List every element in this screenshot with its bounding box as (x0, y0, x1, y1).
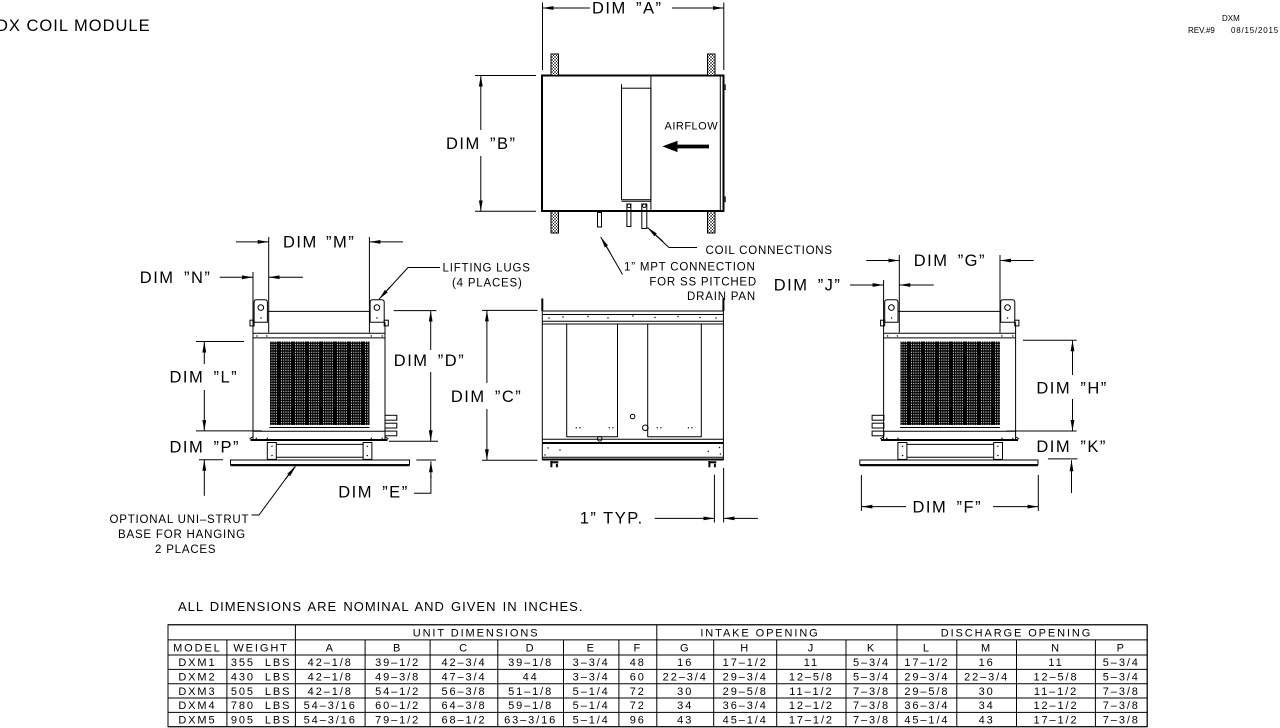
svg-text:”H”: ”H” (1080, 380, 1107, 398)
svg-text:3–3/4: 3–3/4 (573, 671, 610, 683)
svg-text:49–3/8: 49–3/8 (375, 671, 420, 683)
svg-text:17–1/2: 17–1/2 (1033, 714, 1078, 726)
svg-text:42–1/8: 42–1/8 (308, 686, 353, 698)
svg-text:DIM: DIM (1036, 438, 1071, 456)
svg-text:3–3/4: 3–3/4 (573, 657, 610, 669)
svg-text:J: J (808, 643, 815, 655)
svg-text:DRAIN PAN: DRAIN PAN (687, 291, 756, 303)
svg-text:5–3/4: 5–3/4 (1103, 671, 1140, 683)
svg-text:34: 34 (979, 700, 995, 712)
svg-text:7–3/8: 7–3/8 (853, 686, 890, 698)
svg-text:REV.#9: REV.#9 (1188, 26, 1215, 35)
svg-text:DIM: DIM (913, 499, 948, 517)
svg-text:44: 44 (523, 671, 539, 683)
svg-text:43: 43 (979, 714, 995, 726)
svg-text:UNIT DIMENSIONS: UNIT DIMENSIONS (413, 628, 540, 640)
svg-text:”N”: ”N” (184, 269, 211, 287)
svg-text:WEIGHT: WEIGHT (233, 643, 288, 655)
svg-text:COIL CONNECTIONS: COIL CONNECTIONS (706, 245, 833, 257)
svg-text:5–3/4: 5–3/4 (1103, 657, 1140, 669)
svg-text:505 LBS: 505 LBS (231, 686, 291, 698)
svg-text:E: E (587, 643, 596, 655)
svg-text:51–1/8: 51–1/8 (508, 686, 553, 698)
svg-text:12–5/8: 12–5/8 (789, 671, 834, 683)
svg-text:DXM3: DXM3 (178, 686, 216, 698)
svg-text:DXM2: DXM2 (178, 671, 216, 683)
svg-text:”A”: ”A” (636, 0, 663, 18)
svg-text:DXM4: DXM4 (178, 700, 216, 712)
svg-text:36–3/4: 36–3/4 (904, 700, 949, 712)
svg-text:905 LBS: 905 LBS (231, 714, 291, 726)
svg-text:7–3/8: 7–3/8 (1103, 714, 1140, 726)
svg-text:”M”: ”M” (326, 234, 355, 252)
svg-text:11–1/2: 11–1/2 (1034, 686, 1078, 698)
svg-text:”L”: ”L” (214, 369, 239, 387)
svg-text:”C”: ”C” (495, 388, 522, 406)
svg-text:DIM: DIM (394, 352, 429, 370)
svg-text:5–1/4: 5–1/4 (573, 714, 610, 726)
svg-text:7–3/8: 7–3/8 (1103, 700, 1140, 712)
svg-text:H: H (740, 643, 750, 655)
svg-text:DIM: DIM (1036, 380, 1071, 398)
svg-text:”E”: ”E” (382, 484, 409, 502)
svg-text:22–3/4: 22–3/4 (964, 671, 1009, 683)
svg-text:ALL DIMENSIONS ARE NOMINAL AND: ALL DIMENSIONS ARE NOMINAL AND GIVEN IN … (178, 599, 583, 614)
svg-text:54–3/16: 54–3/16 (304, 714, 357, 726)
svg-text:63–3/16: 63–3/16 (504, 714, 557, 726)
svg-text:45–1/4: 45–1/4 (723, 714, 768, 726)
svg-text:16: 16 (979, 657, 995, 669)
svg-text:A: A (326, 643, 335, 655)
svg-text:430 LBS: 430 LBS (231, 671, 291, 683)
svg-text:39–1/8: 39–1/8 (508, 657, 553, 669)
svg-text:DIM: DIM (170, 369, 205, 387)
svg-text:DXM5: DXM5 (178, 714, 216, 726)
svg-text:39–1/2: 39–1/2 (375, 657, 420, 669)
svg-text:7–3/8: 7–3/8 (853, 714, 890, 726)
svg-text:29–3/4: 29–3/4 (723, 671, 768, 683)
svg-text:K: K (867, 643, 876, 655)
svg-text:36–3/4: 36–3/4 (723, 700, 768, 712)
svg-text:96: 96 (630, 714, 646, 726)
svg-text:”G”: ”G” (958, 252, 986, 270)
svg-text:DIM: DIM (592, 0, 627, 18)
svg-text:43: 43 (677, 714, 693, 726)
svg-text:48: 48 (630, 657, 646, 669)
svg-text:1” MPT CONNECTION: 1” MPT CONNECTION (624, 261, 756, 273)
svg-text:”J”: ”J” (818, 277, 842, 295)
svg-text:72: 72 (630, 700, 646, 712)
svg-text:54–1/2: 54–1/2 (375, 686, 420, 698)
svg-text:29–5/8: 29–5/8 (723, 686, 768, 698)
svg-text:45–1/4: 45–1/4 (904, 714, 949, 726)
svg-text:INTAKE OPENING: INTAKE OPENING (700, 628, 819, 640)
svg-text:5–3/4: 5–3/4 (853, 657, 890, 669)
svg-text:72: 72 (630, 686, 646, 698)
svg-text:M: M (981, 643, 992, 655)
svg-text:34: 34 (677, 700, 693, 712)
svg-text:D: D (526, 643, 536, 655)
svg-text:L: L (923, 643, 931, 655)
svg-text:7–3/8: 7–3/8 (1103, 686, 1140, 698)
svg-text:17–1/2: 17–1/2 (789, 714, 834, 726)
svg-text:AIRFLOW: AIRFLOW (665, 121, 719, 133)
svg-text:DIM: DIM (451, 388, 486, 406)
svg-text:68–1/2: 68–1/2 (441, 714, 486, 726)
svg-text:54–3/16: 54–3/16 (304, 700, 357, 712)
svg-text:DIM: DIM (446, 135, 481, 153)
svg-text:60–1/2: 60–1/2 (375, 700, 420, 712)
svg-text:22–3/4: 22–3/4 (663, 671, 708, 683)
svg-text:”K”: ”K” (1080, 438, 1107, 456)
svg-text:DIM: DIM (774, 277, 809, 295)
svg-text:5–3/4: 5–3/4 (853, 671, 890, 683)
svg-text:2 PLACES: 2 PLACES (155, 544, 216, 556)
svg-text:11–1/2: 11–1/2 (789, 686, 833, 698)
svg-text:C: C (459, 643, 469, 655)
svg-text:”P”: ”P” (214, 439, 241, 457)
svg-text:16: 16 (677, 657, 693, 669)
svg-text:G: G (680, 643, 690, 655)
svg-text:780 LBS: 780 LBS (231, 700, 291, 712)
svg-text:30: 30 (677, 686, 693, 698)
svg-text:DIM: DIM (914, 252, 949, 270)
svg-text:29–5/8: 29–5/8 (904, 686, 949, 698)
svg-text:DIM: DIM (283, 234, 318, 252)
svg-text:12–1/2: 12–1/2 (1033, 700, 1078, 712)
svg-text:7–3/8: 7–3/8 (853, 700, 890, 712)
svg-text:42–1/8: 42–1/8 (308, 671, 353, 683)
svg-text:”D”: ”D” (438, 352, 465, 370)
svg-text:79–1/2: 79–1/2 (375, 714, 420, 726)
svg-text:60: 60 (630, 671, 646, 683)
svg-text:17–1/2: 17–1/2 (904, 657, 949, 669)
svg-text:56–3/8: 56–3/8 (441, 686, 486, 698)
svg-text:LIFTING LUGS: LIFTING LUGS (443, 263, 531, 275)
svg-text:DXM1: DXM1 (178, 657, 216, 669)
svg-text:5–1/4: 5–1/4 (573, 700, 610, 712)
svg-text:29–3/4: 29–3/4 (904, 671, 949, 683)
svg-text:OPTIONAL UNI–STRUT: OPTIONAL UNI–STRUT (110, 514, 250, 526)
svg-text:P: P (1117, 643, 1126, 655)
svg-text:1” TYP.: 1” TYP. (580, 510, 644, 528)
svg-text:42–1/8: 42–1/8 (308, 657, 353, 669)
svg-text:DIM: DIM (140, 269, 175, 287)
svg-text:B: B (393, 643, 402, 655)
svg-text:64–3/8: 64–3/8 (441, 700, 486, 712)
svg-text:DIM: DIM (170, 439, 205, 457)
svg-text:”F”: ”F” (957, 499, 983, 517)
svg-text:DXM: DXM (1222, 14, 1240, 23)
svg-text:30: 30 (979, 686, 995, 698)
svg-text:17–1/2: 17–1/2 (723, 657, 768, 669)
svg-text:08/15/2015: 08/15/2015 (1231, 26, 1279, 35)
svg-text:DISCHARGE OPENING: DISCHARGE OPENING (941, 628, 1093, 640)
svg-text:”B”: ”B” (490, 135, 517, 153)
svg-text:355 LBS: 355 LBS (231, 657, 291, 669)
svg-text:12–1/2: 12–1/2 (789, 700, 834, 712)
svg-text:DIM: DIM (338, 484, 373, 502)
svg-text:5–1/4: 5–1/4 (573, 686, 610, 698)
svg-text:(4 PLACES): (4 PLACES) (452, 278, 523, 290)
svg-text:FOR SS PITCHED: FOR SS PITCHED (649, 276, 757, 288)
svg-text:42–3/4: 42–3/4 (441, 657, 486, 669)
svg-text:11: 11 (1048, 657, 1063, 669)
svg-text:59–1/8: 59–1/8 (508, 700, 553, 712)
svg-text:12–5/8: 12–5/8 (1033, 671, 1078, 683)
svg-text:47–3/4: 47–3/4 (441, 671, 486, 683)
svg-text:BASE FOR HANGING: BASE FOR HANGING (118, 529, 246, 541)
svg-text:N: N (1051, 643, 1061, 655)
svg-text:MODEL: MODEL (173, 643, 222, 655)
svg-text:DX COIL MODULE: DX COIL MODULE (0, 17, 151, 35)
svg-text:11: 11 (804, 657, 819, 669)
svg-text:F: F (633, 643, 642, 655)
